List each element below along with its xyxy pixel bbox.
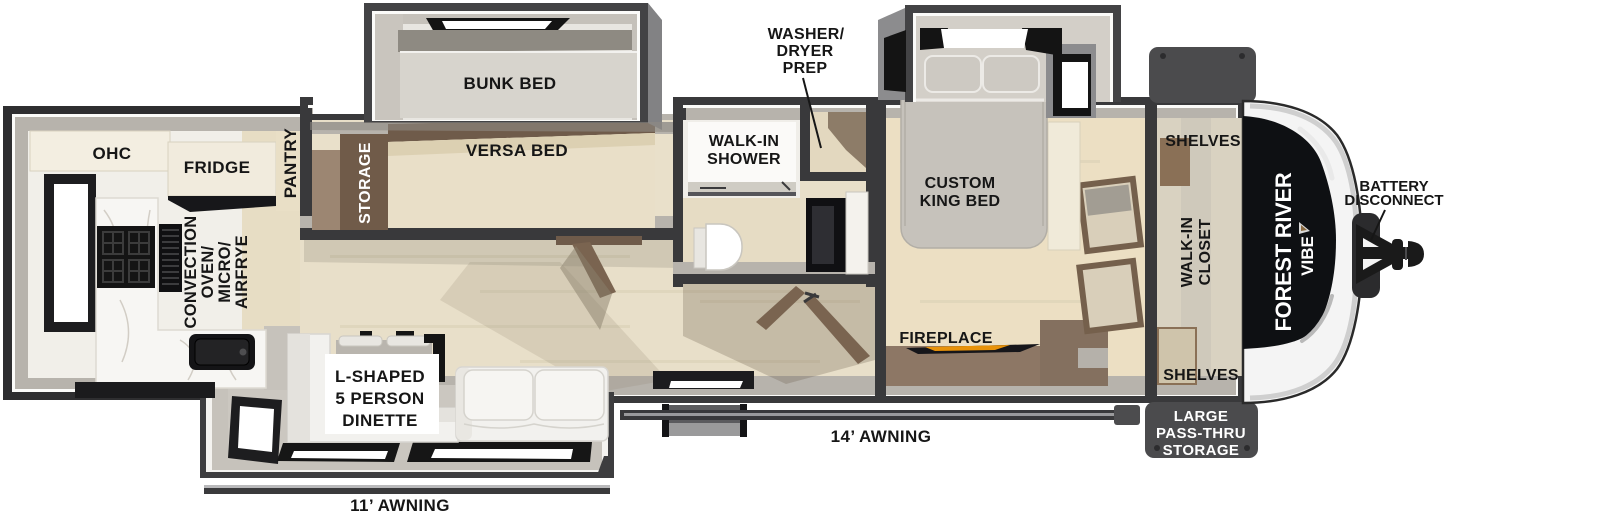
svg-text:CUSTOM: CUSTOM <box>925 175 996 192</box>
svg-text:MICRO/: MICRO/ <box>216 241 234 302</box>
svg-text:SHELVES: SHELVES <box>1165 133 1241 150</box>
svg-text:OVEN/: OVEN/ <box>199 245 217 298</box>
svg-text:SHELVES: SHELVES <box>1163 367 1239 384</box>
svg-text:SHOWER: SHOWER <box>707 151 781 168</box>
svg-text:BUNK BED: BUNK BED <box>464 74 557 93</box>
svg-text:14’ AWNING: 14’ AWNING <box>831 427 932 446</box>
svg-text:FIREPLACE: FIREPLACE <box>899 330 992 347</box>
svg-text:KING BED: KING BED <box>920 193 1001 210</box>
svg-text:LARGE: LARGE <box>1174 408 1229 425</box>
svg-text:11’ AWNING: 11’ AWNING <box>350 496 450 513</box>
svg-text:WALK-IN: WALK-IN <box>709 133 780 150</box>
svg-text:WASHER/: WASHER/ <box>768 26 845 43</box>
svg-text:CONVECTION: CONVECTION <box>182 215 200 328</box>
svg-text:OHC: OHC <box>93 144 132 163</box>
svg-text:VERSA BED: VERSA BED <box>466 141 568 160</box>
svg-text:PANTRY: PANTRY <box>281 128 300 199</box>
svg-text:PASS-THRU: PASS-THRU <box>1156 425 1246 442</box>
svg-text:STORAGE: STORAGE <box>357 142 374 224</box>
svg-text:FOREST RIVER: FOREST RIVER <box>1271 172 1296 331</box>
svg-text:DRYER: DRYER <box>777 43 834 60</box>
svg-text:DINETTE: DINETTE <box>342 411 418 430</box>
svg-text:FRIDGE: FRIDGE <box>184 158 251 177</box>
svg-text:PREP: PREP <box>783 60 828 77</box>
svg-text:AIRFRYE: AIRFRYE <box>233 235 251 309</box>
svg-text:WALK-IN: WALK-IN <box>1179 217 1196 288</box>
svg-text:CLOSET: CLOSET <box>1197 219 1214 286</box>
svg-text:STORAGE: STORAGE <box>1163 442 1240 459</box>
svg-text:DISCONNECT: DISCONNECT <box>1344 192 1443 209</box>
svg-text:L-SHAPED: L-SHAPED <box>335 367 425 386</box>
svg-text:5 PERSON: 5 PERSON <box>335 389 424 408</box>
svg-text:VIBE: VIBE <box>1298 236 1317 276</box>
